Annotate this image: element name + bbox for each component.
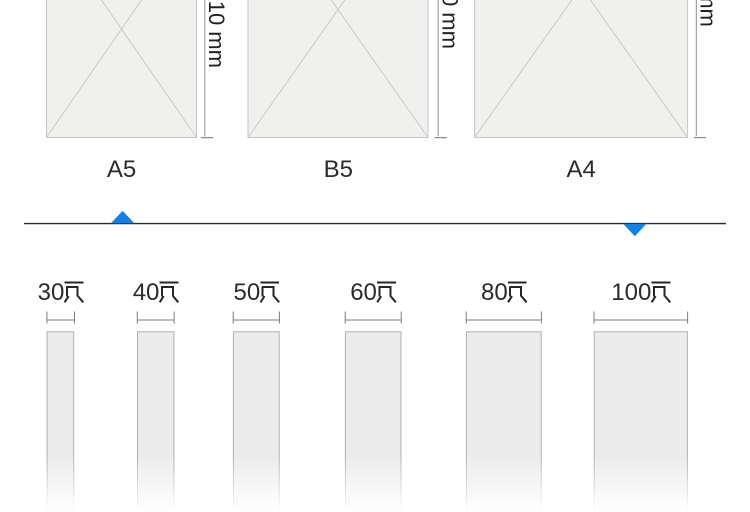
svg-text:30: 30 — [38, 279, 65, 306]
svg-text:A4: A4 — [567, 156, 596, 183]
svg-text:297 mm: 297 mm — [696, 0, 721, 27]
svg-text:100: 100 — [611, 279, 651, 306]
svg-text:B5: B5 — [324, 156, 353, 183]
svg-text:A5: A5 — [107, 156, 136, 183]
svg-text:210 mm: 210 mm — [204, 0, 229, 68]
svg-text:60: 60 — [350, 279, 377, 306]
svg-text:50: 50 — [233, 279, 260, 306]
svg-text:250 mm: 250 mm — [438, 0, 463, 49]
svg-text:80: 80 — [481, 279, 508, 306]
svg-text:40: 40 — [133, 279, 160, 306]
